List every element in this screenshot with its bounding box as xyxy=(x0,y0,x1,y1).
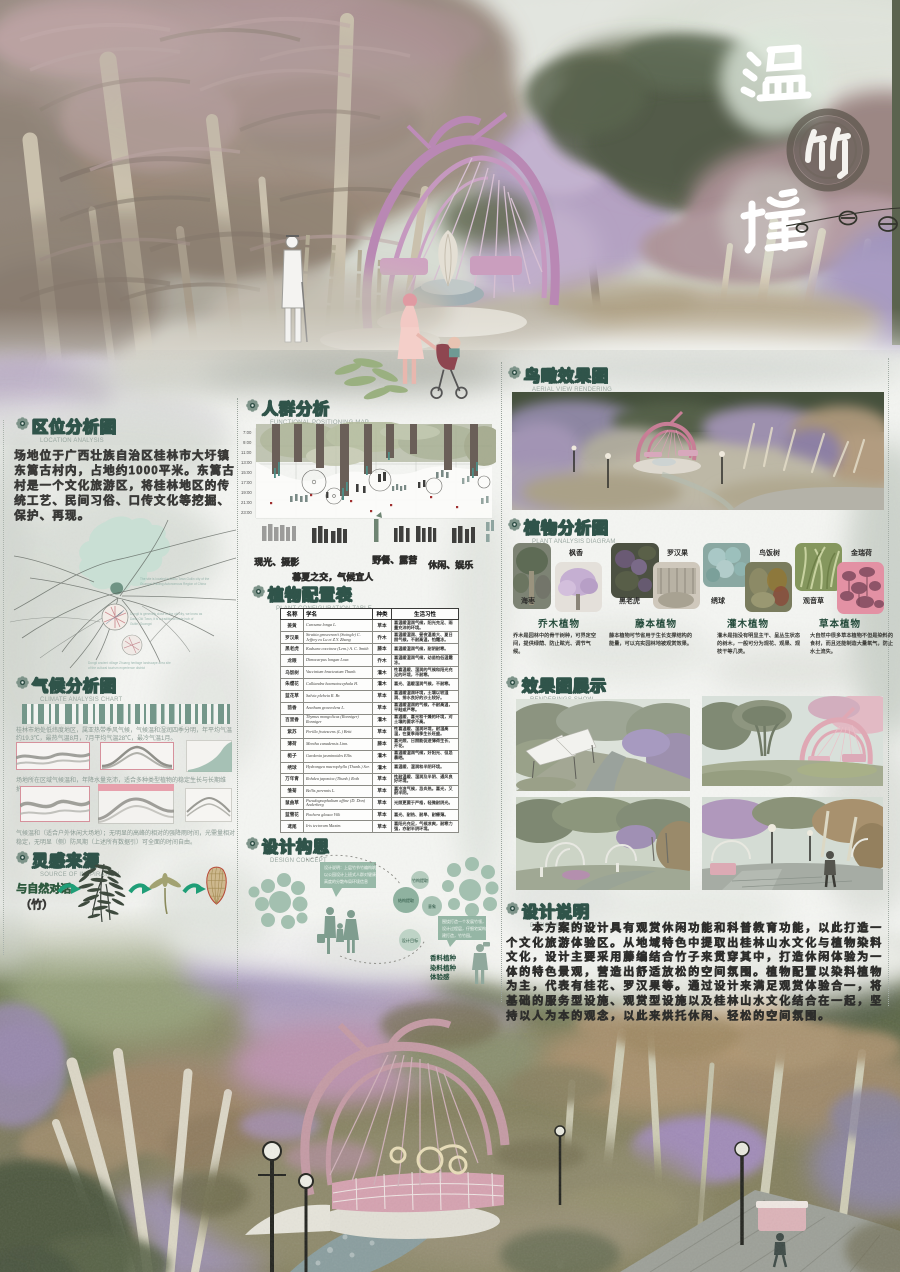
svg-text:21:00: 21:00 xyxy=(241,500,252,505)
svg-text:The site is located in Daxu To: The site is located in Daxu Town Guilin … xyxy=(140,577,209,581)
svg-text:9:00: 9:00 xyxy=(243,440,252,445)
svg-text:Daxu Old Town, it is a traditi: Daxu Old Town, it is a traditional trade… xyxy=(130,617,193,621)
svg-text:高度的分散布局环境信息: 高度的分散布局环境信息 xyxy=(324,878,368,884)
svg-text:11:00: 11:00 xyxy=(241,450,252,455)
svg-text:17:00: 17:00 xyxy=(241,480,252,485)
svg-text:23:00: 23:00 xyxy=(241,510,252,515)
svg-text:建打造，竹竹园。: 建打造，竹竹园。 xyxy=(442,932,474,938)
svg-text:以公园设计上班式人群对健康: 以公园设计上班式人群对健康 xyxy=(324,871,376,877)
svg-text:Guangxi Zhuang Autonomous Regi: Guangxi Zhuang Autonomous Region of Chin… xyxy=(140,582,206,586)
svg-text:体验感: 体验感 xyxy=(430,972,450,981)
svg-text:13:00: 13:00 xyxy=(241,460,252,465)
svg-text:19:00: 19:00 xyxy=(241,490,252,495)
svg-text:染料植种: 染料植种 xyxy=(429,963,457,972)
svg-text:7:00: 7:00 xyxy=(243,430,252,435)
svg-text:of the cultural tourism experi: of the cultural tourism experience distr… xyxy=(88,666,145,670)
svg-text:竹构提取: 竹构提取 xyxy=(412,877,428,883)
svg-text:15:00: 15:00 xyxy=(241,470,252,475)
svg-text:Guilin, Guangxi: Guilin, Guangxi xyxy=(130,622,152,626)
svg-text:香料植种: 香料植种 xyxy=(430,953,457,962)
svg-text:围绕打造一个发展竹领，: 围绕打造一个发展竹领， xyxy=(442,918,486,924)
svg-text:Dongli ancient village Zhuang: Dongli ancient village Zhuang heritage l… xyxy=(88,661,171,665)
svg-text:设计说明：上层竹节竹编构筑: 设计说明：上层竹节竹编构筑 xyxy=(324,864,376,870)
svg-text:设计目标: 设计目标 xyxy=(402,937,419,944)
svg-text:Dongli is generally close to t: Dongli is generally close to the old cit… xyxy=(130,612,203,616)
svg-text:设计过程层，仔细宅架构: 设计过程层，仔细宅架构 xyxy=(442,925,486,931)
svg-text:意象: 意象 xyxy=(428,903,436,909)
svg-text:结构提取: 结构提取 xyxy=(398,897,414,903)
